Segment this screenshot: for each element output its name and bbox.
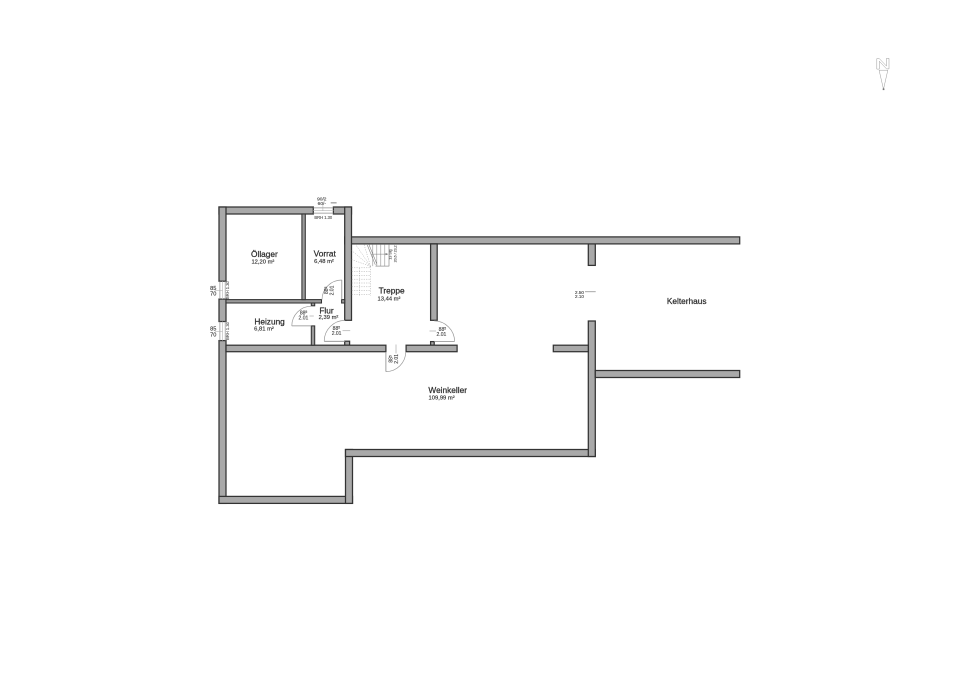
svg-text:70: 70 (210, 332, 216, 338)
svg-text:2.01: 2.01 (437, 332, 447, 338)
svg-text:13,44 m²: 13,44 m² (378, 296, 401, 302)
svg-text:13 Stg: 13 Stg (388, 249, 392, 259)
svg-text:BRH 1.30: BRH 1.30 (225, 321, 230, 339)
svg-text:Öllager: Öllager (251, 249, 278, 259)
svg-text:Weinkeller: Weinkeller (428, 385, 467, 395)
svg-text:2.01: 2.01 (394, 354, 400, 364)
svg-text:Flur: Flur (319, 305, 334, 315)
svg-text:2.01: 2.01 (329, 285, 335, 295)
svg-text:Heizung: Heizung (254, 316, 285, 326)
svg-text:60/-: 60/- (318, 201, 327, 207)
svg-text:BRH 1.30: BRH 1.30 (225, 281, 230, 299)
svg-text:20,6 / 23,2: 20,6 / 23,2 (393, 245, 397, 262)
svg-text:Treppe: Treppe (379, 285, 405, 295)
svg-text:6,48 m²: 6,48 m² (314, 259, 334, 265)
svg-text:70: 70 (210, 292, 216, 298)
svg-text:2.01: 2.01 (332, 331, 342, 337)
svg-text:2.01: 2.01 (299, 316, 309, 322)
svg-text:109,99 m²: 109,99 m² (429, 395, 455, 401)
svg-text:Vorrat: Vorrat (314, 249, 337, 259)
svg-text:2.10: 2.10 (575, 294, 584, 299)
svg-text:12,20 m²: 12,20 m² (251, 259, 274, 265)
svg-text:6,81 m²: 6,81 m² (254, 327, 274, 333)
svg-text:BRH 1.30: BRH 1.30 (314, 215, 332, 220)
svg-text:Kelterhaus: Kelterhaus (667, 296, 707, 306)
svg-text:2,39 m²: 2,39 m² (319, 315, 339, 321)
